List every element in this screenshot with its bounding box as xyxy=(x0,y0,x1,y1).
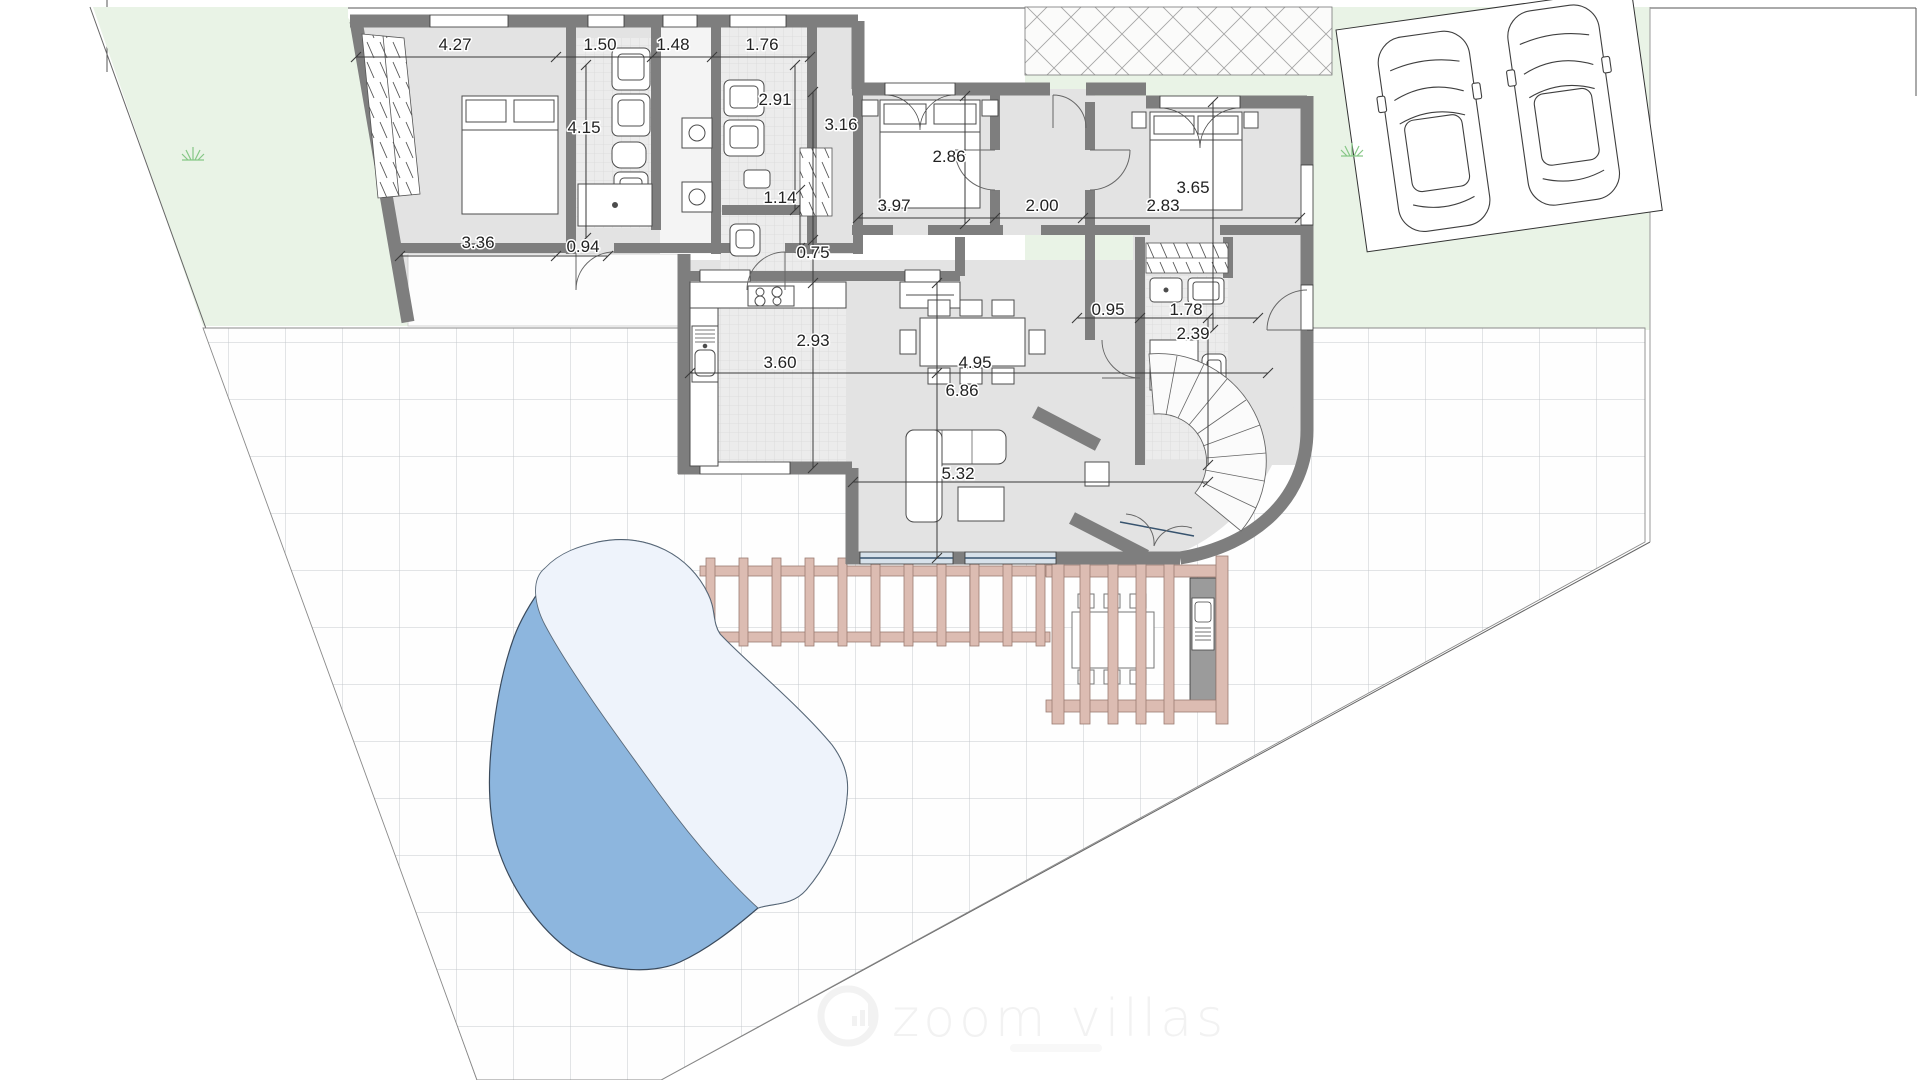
dimension-label: 0.95 xyxy=(1091,300,1124,319)
dimension-label: 1.78 xyxy=(1169,300,1202,319)
watermark-tagline xyxy=(1010,1044,1102,1052)
driveway-hatch xyxy=(1025,7,1332,75)
dimension-label: 5.32 xyxy=(941,464,974,483)
dimension-label: 1.48 xyxy=(656,35,689,54)
outdoor-sink xyxy=(1192,598,1214,650)
dimension-label: 4.15 xyxy=(567,118,600,137)
dimension-label: 4.27 xyxy=(438,35,471,54)
dimension-label: 3.16 xyxy=(824,115,857,134)
dimension-label: 3.36 xyxy=(461,233,494,252)
dimension-label: 3.65 xyxy=(1176,178,1209,197)
watermark: zoom villas xyxy=(821,989,1227,1052)
dimension-label: 2.00 xyxy=(1025,196,1058,215)
coffee-table xyxy=(958,487,1004,521)
floor-plan-page: 4.27 1.50 1.48 1.76 4.15 2.91 3.16 2.86 … xyxy=(0,0,1920,1080)
dimension-label: 2.86 xyxy=(932,147,965,166)
dimension-label: 2.93 xyxy=(796,331,829,350)
bed-double xyxy=(462,96,558,214)
zoom-villas-logo-icon xyxy=(852,1004,873,1026)
watermark-text: zoom villas xyxy=(892,989,1227,1049)
porch xyxy=(408,254,688,326)
dimension-label: 6.86 xyxy=(945,381,978,400)
dimension-label: 0.75 xyxy=(796,243,829,262)
dimension-label: 1.76 xyxy=(745,35,778,54)
dimension-label: 0.94 xyxy=(566,237,599,256)
zoom-villas-logo-icon xyxy=(821,989,875,1043)
dimension-label: 3.97 xyxy=(877,196,910,215)
dimension-label: 2.91 xyxy=(758,90,791,109)
dimension-label: 1.50 xyxy=(583,35,616,54)
bed-double xyxy=(862,100,998,208)
dimension-label: 2.39 xyxy=(1176,324,1209,343)
dimension-label: 1.14 xyxy=(763,188,796,207)
dimension-label: 4.95 xyxy=(958,353,991,372)
parking-pad xyxy=(1336,0,1662,252)
floor-plan-canvas: 4.27 1.50 1.48 1.76 4.15 2.91 3.16 2.86 … xyxy=(0,0,1920,1080)
dimension-label: 3.60 xyxy=(763,353,796,372)
dimension-label: 2.83 xyxy=(1146,196,1179,215)
